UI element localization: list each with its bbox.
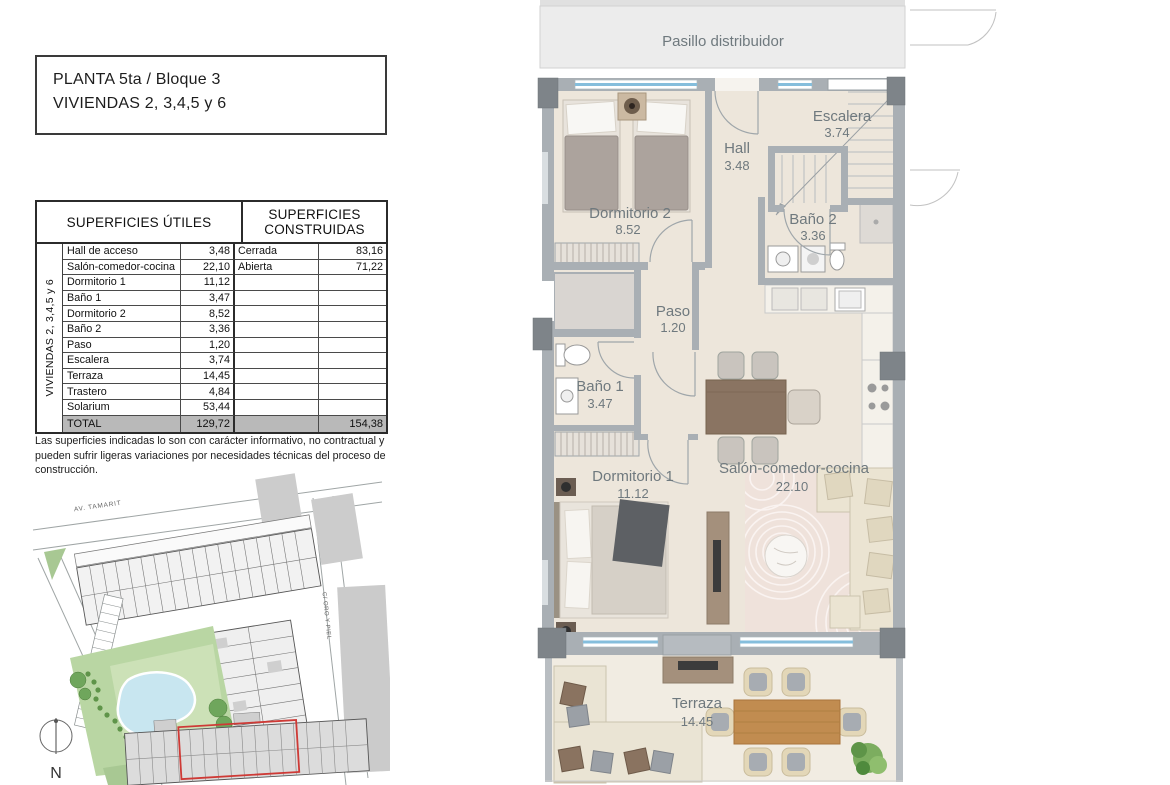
table-row: Baño 13,47	[63, 291, 386, 307]
table-header: SUPERFICIES ÚTILES SUPERFICIES CONSTRUID…	[37, 202, 386, 244]
tv-unit-salon	[707, 512, 729, 624]
label-pasillo: Pasillo distribuidor	[662, 33, 784, 50]
title-box: PLANTA 5ta / Bloque 3 VIVIENDAS 2, 3,4,5…	[35, 55, 387, 135]
north-arrow	[40, 718, 72, 754]
label-dormitorio2: Dormitorio 2	[589, 205, 671, 222]
label-hall-area: 3.48	[724, 158, 749, 173]
plan-sheet: PLANTA 5ta / Bloque 3 VIVIENDAS 2, 3,4,5…	[0, 0, 1170, 785]
table-rows: Hall de acceso3,48 Cerrada83,16 Salón-co…	[63, 244, 386, 432]
coffee-table	[765, 535, 807, 577]
terrace-tv-console	[663, 657, 733, 683]
header-superficies-utiles: SUPERFICIES ÚTILES	[37, 202, 243, 242]
table-row: Escalera3,74	[63, 353, 386, 369]
table-side-label: VIVIENDAS 2, 3,4,5 y 6	[37, 244, 63, 432]
plan-title-line2: VIVIENDAS 2, 3,4,5 y 6	[53, 92, 385, 116]
areas-table: SUPERFICIES ÚTILES SUPERFICIES CONSTRUID…	[35, 200, 388, 434]
label-hall: Hall	[724, 140, 750, 157]
header-superficies-construidas: SUPERFICIES CONSTRUIDAS	[243, 202, 386, 242]
label-paso-area: 1.20	[660, 320, 685, 335]
wardrobe-dorm1	[555, 432, 639, 456]
label-paso: Paso	[656, 303, 690, 320]
table-row: Dormitorio 28,52	[63, 306, 386, 322]
table-total-row: TOTAL129,72 154,38	[63, 416, 386, 432]
shaft-room	[554, 273, 640, 330]
label-dormitorio2-area: 8.52	[615, 222, 640, 237]
floor-plan: Pasillo distribuidor Dormitorio 2 8.52 H…	[530, 0, 1000, 785]
label-bano2-area: 3.36	[800, 228, 825, 243]
neighbor-outline-lines	[910, 10, 996, 206]
label-escalera: Escalera	[813, 108, 872, 125]
street-label-oro-y-piel: C/ ORO Y PIEL	[321, 592, 332, 640]
label-bano1: Baño 1	[576, 378, 624, 395]
dormitorio1-bed	[554, 478, 670, 640]
label-terraza-area: 14.45	[681, 714, 714, 729]
plan-title-line1: PLANTA 5ta / Bloque 3	[53, 68, 385, 92]
table-row: Paso1,20	[63, 338, 386, 354]
table-row: Hall de acceso3,48 Cerrada83,16	[63, 244, 386, 260]
table-row: Dormitorio 111,12	[63, 275, 386, 291]
label-escalera-area: 3.74	[824, 125, 849, 140]
street-label-tamarit: AV. TAMARIT	[74, 500, 122, 514]
table-row: Terraza14,45	[63, 369, 386, 385]
label-dormitorio1-area: 11.12	[617, 486, 649, 501]
table-row: Trastero4,84	[63, 384, 386, 400]
table-row: Salón-comedor-cocina22,10 Abierta71,22	[63, 260, 386, 276]
label-dormitorio1: Dormitorio 1	[592, 468, 674, 485]
table-row: Solarium53,44	[63, 400, 386, 416]
north-label: N	[50, 765, 62, 782]
label-terraza: Terraza	[672, 695, 723, 712]
label-bano1-area: 3.47	[587, 396, 612, 411]
label-bano2: Baño 2	[789, 211, 837, 228]
label-salon: Salón-comedor-cocina	[719, 460, 870, 477]
terrace-door-block	[663, 635, 731, 655]
table-row: Baño 23,36	[63, 322, 386, 338]
label-salon-area: 22.10	[776, 479, 809, 494]
site-plan: N AV. TAMARIT C/ ORO Y PIEL	[8, 468, 390, 785]
